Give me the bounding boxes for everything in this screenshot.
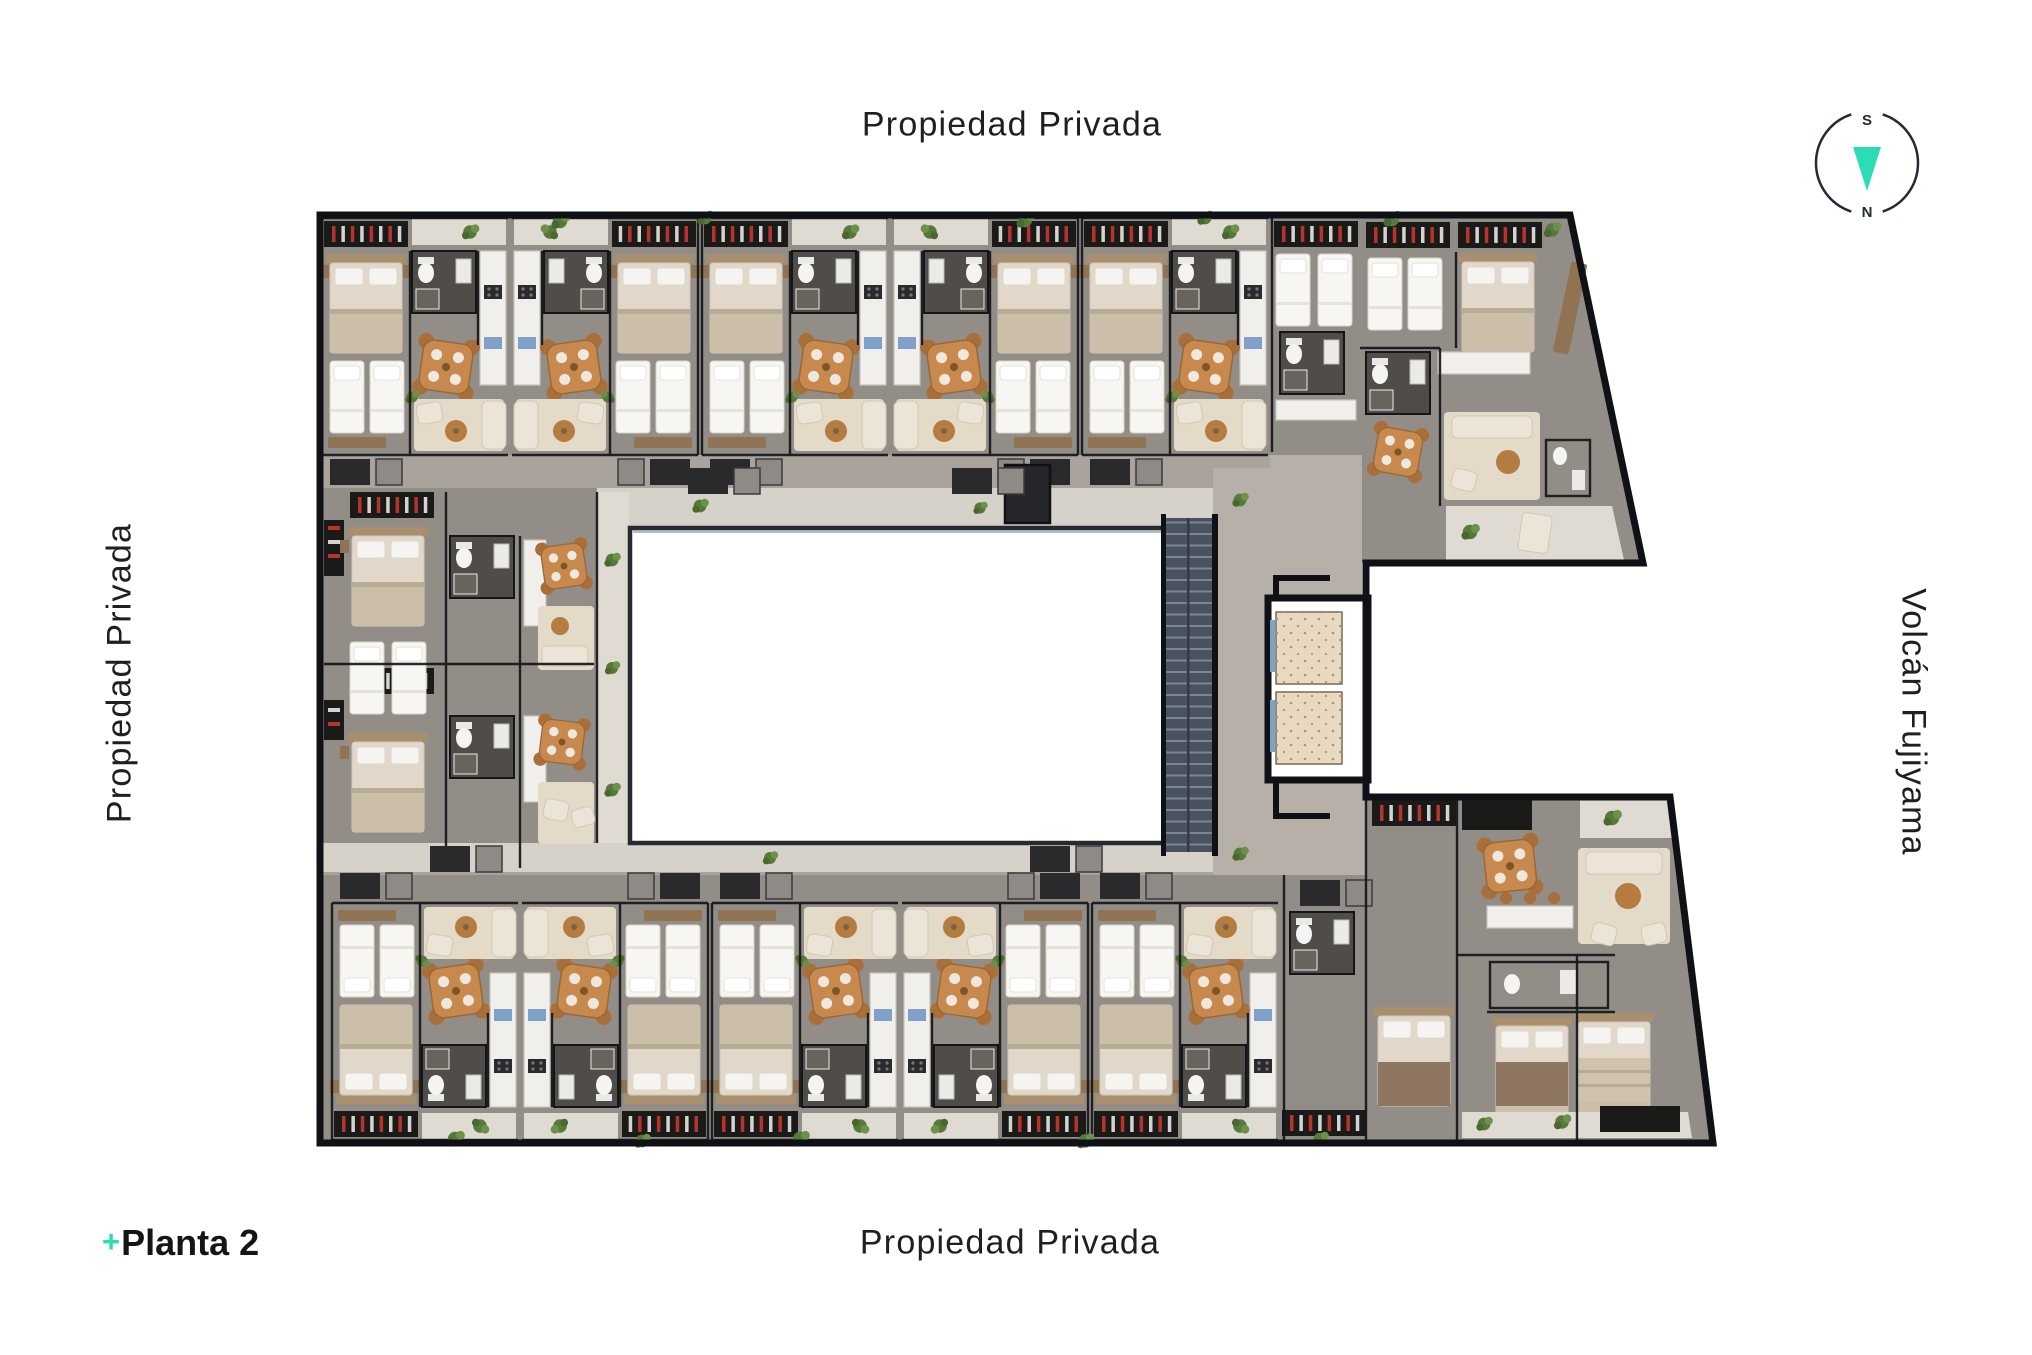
floor-title-text: Planta 2 bbox=[121, 1222, 259, 1263]
compass-south: S bbox=[1862, 112, 1872, 129]
floor-title: +Planta 2 bbox=[102, 1222, 259, 1264]
courtyard bbox=[630, 528, 1165, 843]
floor-plan bbox=[0, 0, 2032, 1355]
label-propiedad-privada-top: Propiedad Privada bbox=[862, 106, 1162, 145]
plus-icon: + bbox=[102, 1224, 120, 1259]
compass-north: N bbox=[1862, 204, 1873, 221]
label-volcan-fujiyama-right: Volcán Fujiyama bbox=[1894, 588, 1933, 855]
staircase bbox=[1161, 514, 1218, 856]
label-propiedad-privada-left: Propiedad Privada bbox=[101, 523, 140, 823]
top-band-units bbox=[320, 218, 1358, 485]
compass-arrow-icon bbox=[1853, 147, 1881, 191]
floor-plan-page: Propiedad Privada Propiedad Privada Volc… bbox=[0, 0, 2032, 1355]
elevator-core bbox=[1268, 578, 1368, 816]
label-propiedad-privada-bottom: Propiedad Privada bbox=[860, 1224, 1160, 1263]
corridor bbox=[1213, 468, 1270, 875]
compass: S N bbox=[1809, 102, 1925, 224]
